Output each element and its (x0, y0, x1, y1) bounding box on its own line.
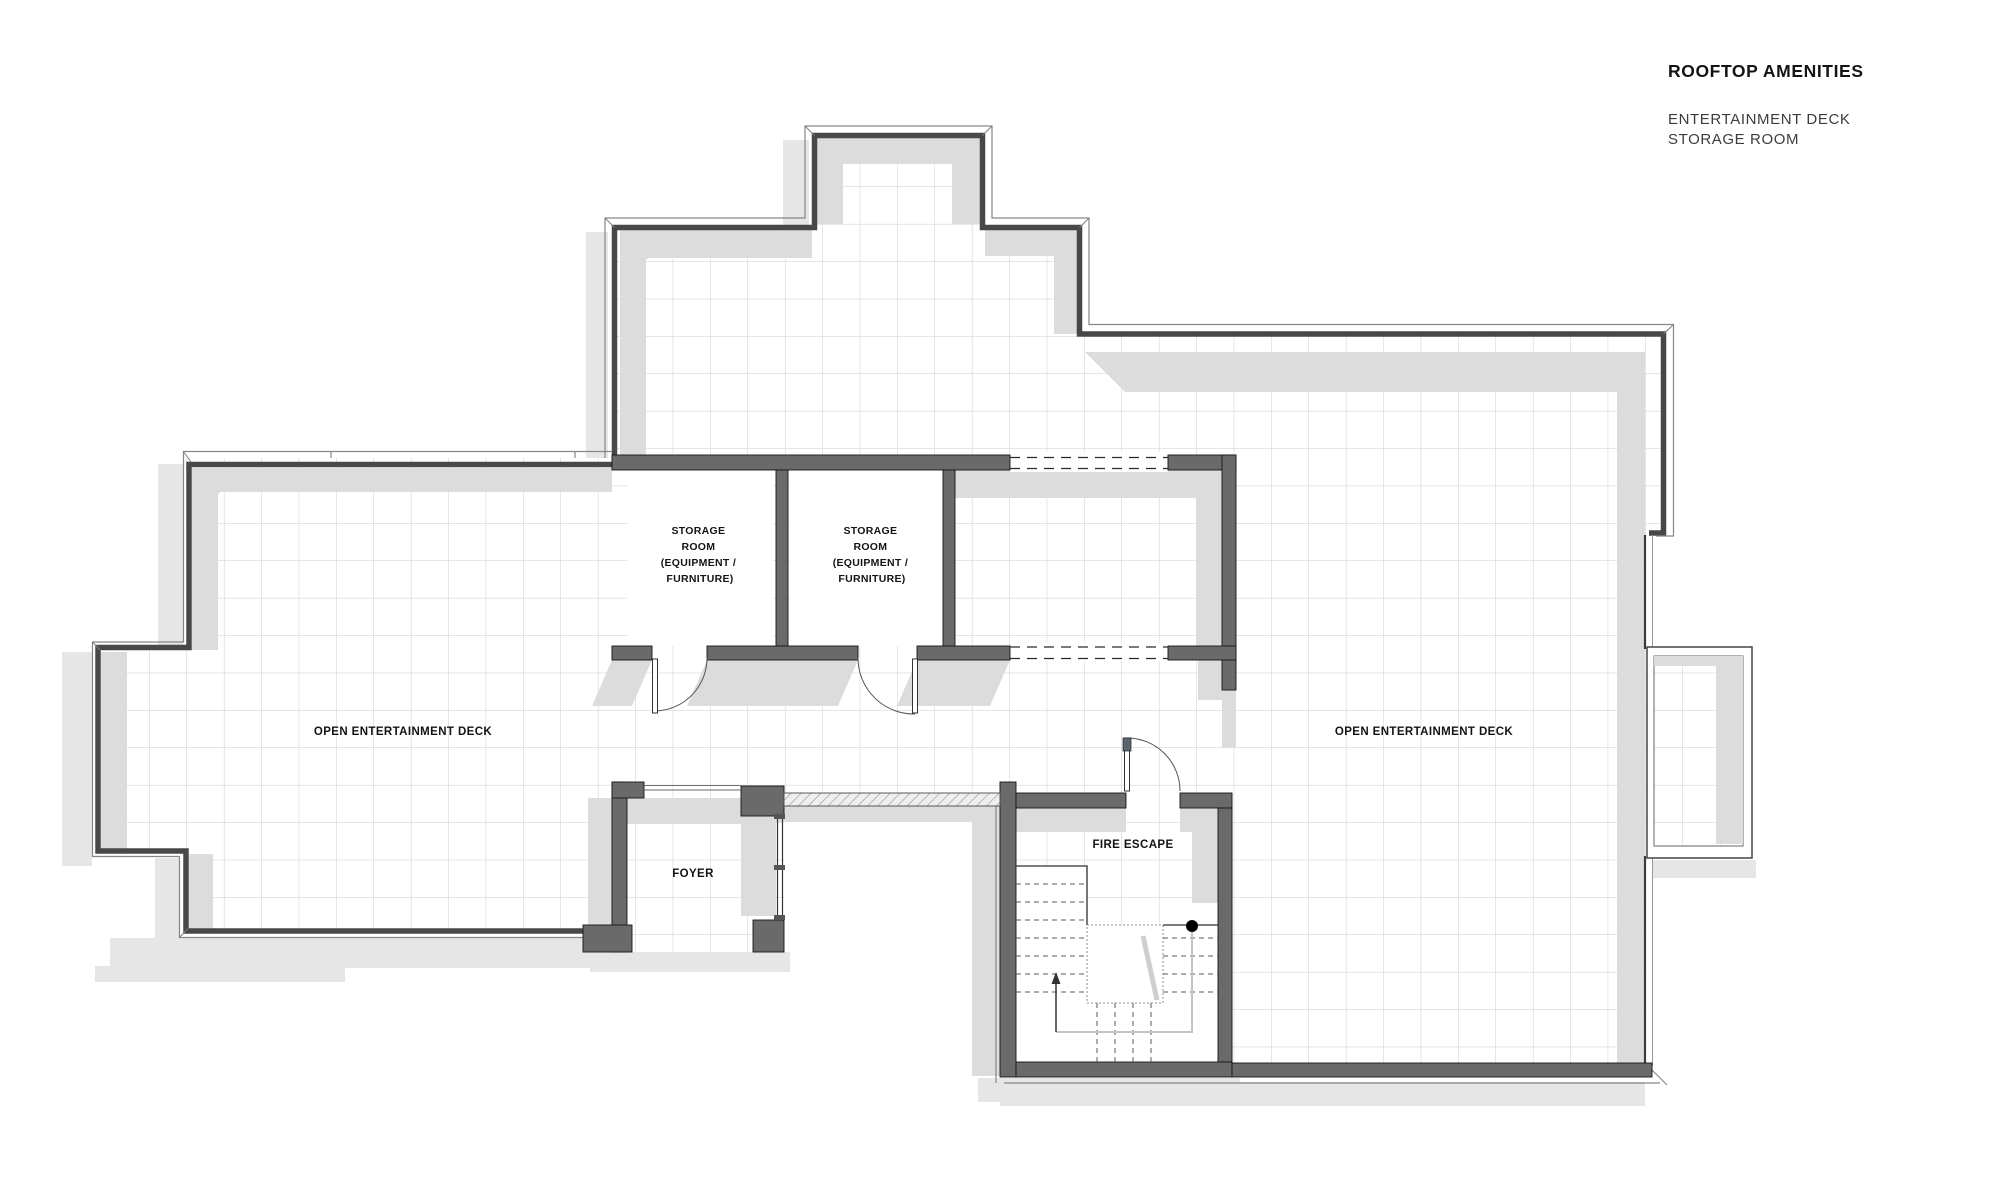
label-open-entertainment-deck-left: OPEN ENTERTAINMENT DECK (314, 726, 493, 738)
right-balcony (1647, 647, 1752, 858)
drawing-header: ROOFTOP AMENITIES ENTERTAINMENT DECK STO… (1668, 61, 1864, 148)
stair-post-dot (1186, 920, 1198, 932)
door-leaf (653, 659, 658, 713)
drawing-title: ROOFTOP AMENITIES (1668, 61, 1864, 81)
hatched-parapet-strip (784, 793, 1000, 806)
fire-escape-left-wall (1000, 782, 1016, 1077)
door-leaf (913, 659, 918, 713)
label-open-entertainment-deck-right: OPEN ENTERTAINMENT DECK (1335, 726, 1514, 738)
storage-divider-wall-1 (776, 470, 788, 646)
storage-divider-wall-2 (943, 470, 955, 646)
deck-bottom-wall (1232, 1063, 1652, 1077)
drawing-subtitle-line1: ENTERTAINMENT DECK (1668, 111, 1851, 128)
label-foyer: FOYER (672, 868, 714, 880)
label-fire-escape: FIRE ESCAPE (1092, 839, 1173, 851)
floor-plan-page: OPEN ENTERTAINMENT DECK OPEN ENTERTAINME… (0, 0, 2000, 1196)
floor-plan-drawing: OPEN ENTERTAINMENT DECK OPEN ENTERTAINME… (0, 0, 2000, 1196)
storage-top-wall (612, 455, 1010, 470)
drawing-subtitle-line2: STORAGE ROOM (1668, 131, 1799, 148)
